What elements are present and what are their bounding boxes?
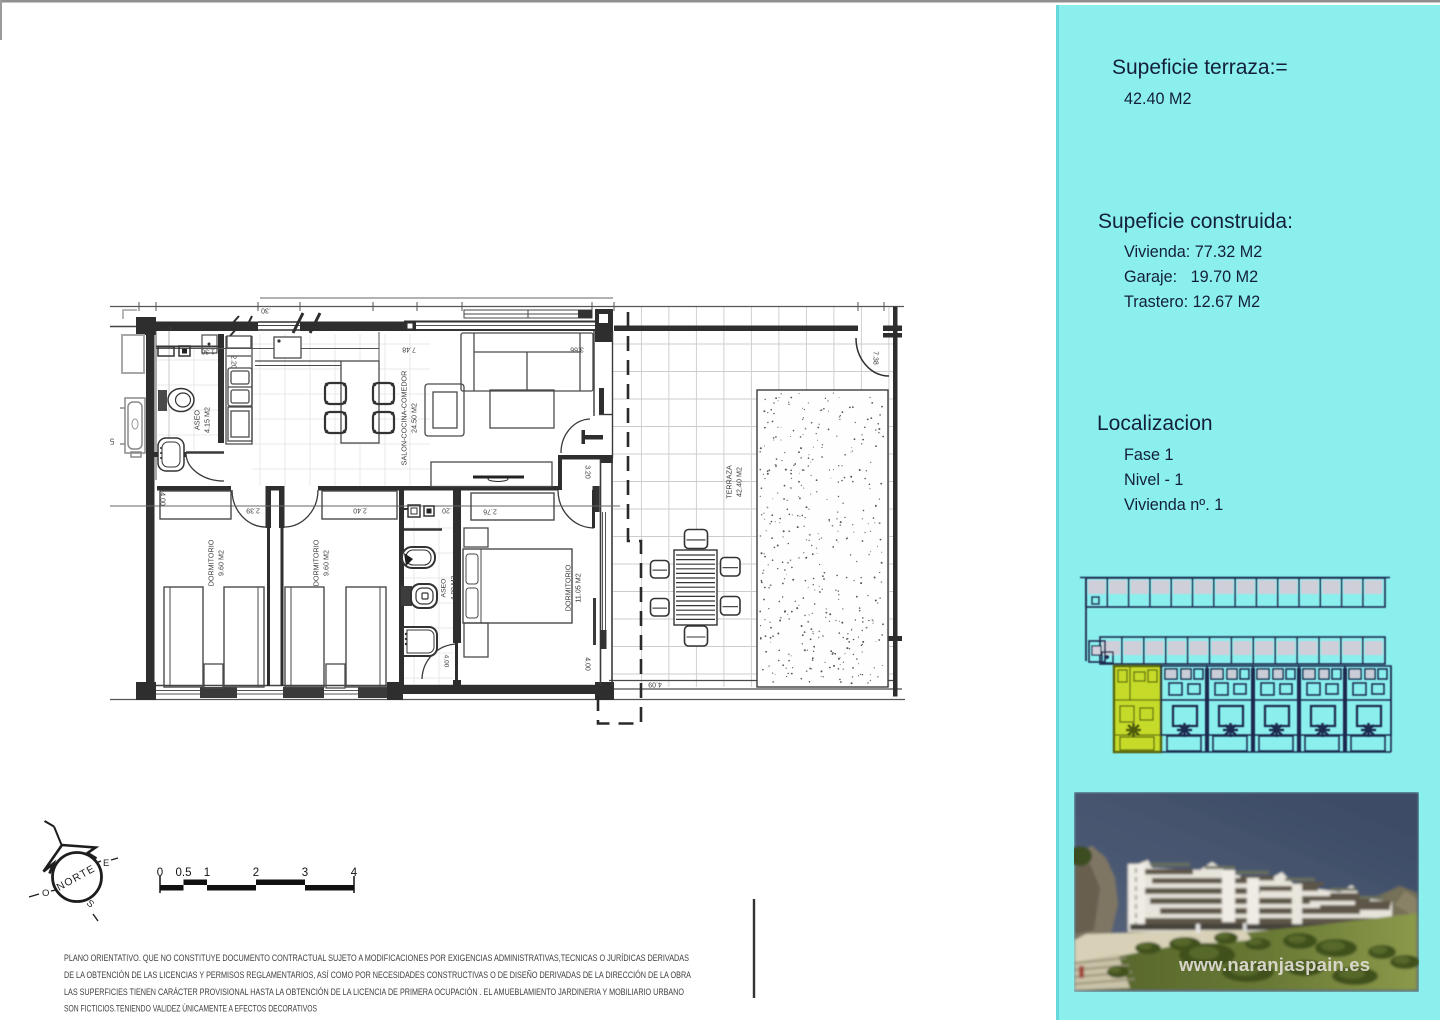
svg-text:2: 2 [253,867,259,879]
svg-text:Nivel - 1: Nivel - 1 [1124,471,1183,489]
svg-text:3.66: 3.66 [570,346,584,353]
svg-text:DORMITORIO: DORMITORIO [564,564,573,611]
svg-text:Fase 1: Fase 1 [1124,446,1174,464]
svg-text:7.38: 7.38 [872,351,879,365]
svg-text:4.80 M2: 4.80 M2 [451,576,458,601]
svg-text:4.09: 4.09 [648,681,662,688]
svg-text:2.76: 2.76 [483,508,497,515]
svg-text:O: O [42,888,49,899]
svg-text:.30: .30 [261,307,271,314]
svg-text:4.00: 4.00 [584,657,591,671]
svg-text:DE LA OBTENCIÓN DE LAS LICENCI: DE LA OBTENCIÓN DE LAS LICENCIAS Y PERMI… [64,970,691,980]
svg-text:SON FICTICIOS.TENIENDO VALIDEZ: SON FICTICIOS.TENIENDO VALIDEZ ÚNICAMENT… [64,1004,317,1014]
svg-text:0.5: 0.5 [176,867,192,879]
svg-text:Vivienda nº. 1: Vivienda nº. 1 [1124,496,1223,514]
svg-text:9.60 M2: 9.60 M2 [217,550,226,576]
svg-text:Localizacion: Localizacion [1097,412,1213,435]
svg-text:9.60 M2: 9.60 M2 [322,550,331,576]
svg-text:0: 0 [157,867,163,879]
svg-text:Vivienda: 77.32 M2: Vivienda: 77.32 M2 [1124,243,1262,261]
svg-text:www.naranjaspain.es: www.naranjaspain.es [1178,954,1370,975]
svg-text:42.40 M2: 42.40 M2 [735,467,744,497]
svg-text:ASEO: ASEO [193,410,202,430]
svg-text:5: 5 [109,437,114,446]
svg-text:11.05 M2: 11.05 M2 [574,573,583,602]
svg-text:Garaje: 19.70 M2: Garaje: 19.70 M2 [1124,268,1258,286]
svg-text:DORMITORIO: DORMITORIO [207,539,216,586]
svg-text:Supeficie construida:: Supeficie construida: [1098,210,1293,233]
svg-text:2.20: 2.20 [230,355,237,369]
svg-text:42.40 M2: 42.40 M2 [1124,90,1192,108]
svg-text:Supeficie terraza:=: Supeficie terraza:= [1112,56,1288,79]
svg-text:SALON-COCINA-COMEDOR: SALON-COCINA-COMEDOR [400,371,409,466]
svg-text:2.39: 2.39 [246,507,260,514]
svg-text:3.20: 3.20 [584,465,591,479]
svg-text:7.48: 7.48 [402,346,416,353]
svg-text:ASEO: ASEO [441,579,448,598]
svg-text:3: 3 [302,867,308,879]
svg-text:24.50 M2: 24.50 M2 [410,403,419,433]
svg-text:1.30: 1.30 [201,348,215,355]
svg-text:4: 4 [351,867,358,879]
svg-text:.20: .20 [442,507,452,514]
svg-text:E: E [103,858,109,869]
svg-text:DORMITORIO: DORMITORIO [312,539,321,586]
svg-text:2.40: 2.40 [353,507,367,514]
svg-text:1: 1 [204,867,210,879]
svg-text:4.00: 4.00 [443,655,450,668]
svg-text:TERRAZA: TERRAZA [725,465,734,499]
svg-text:.6: .6 [166,325,172,331]
svg-text:4.15 M2: 4.15 M2 [203,407,212,433]
svg-text:LAS SUPERFICIES TIENEN CARÁCTE: LAS SUPERFICIES TIENEN CARÁCTER PROVISIO… [64,987,684,997]
svg-text:PLANO ORIENTATIVO. QUE NO CONS: PLANO ORIENTATIVO. QUE NO CONSTITUYE DOC… [64,953,689,963]
svg-text:4.00: 4.00 [159,492,166,506]
svg-text:Trastero: 12.67 M2: Trastero: 12.67 M2 [1124,293,1260,311]
